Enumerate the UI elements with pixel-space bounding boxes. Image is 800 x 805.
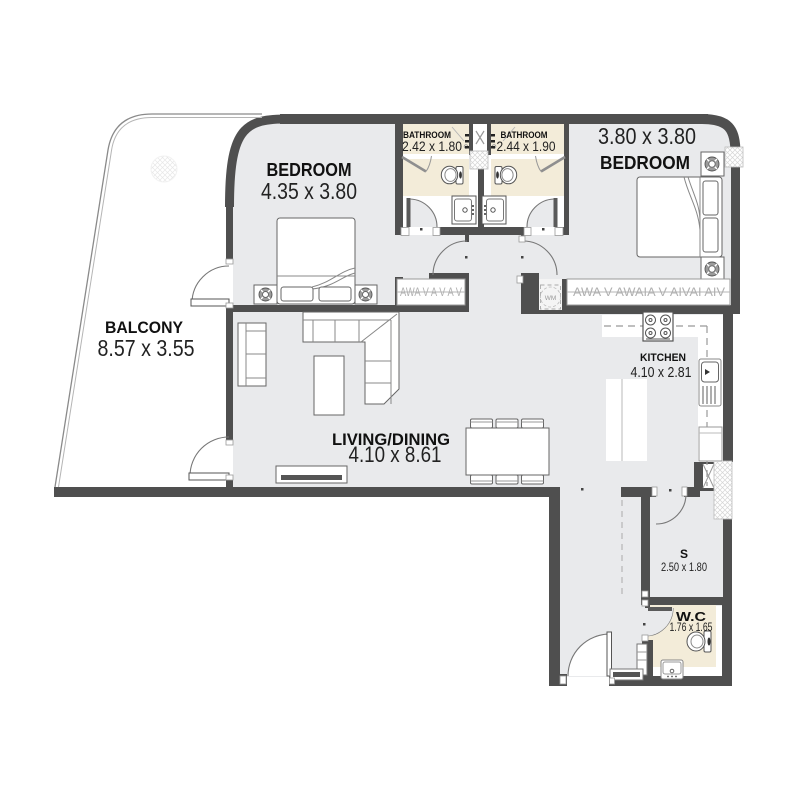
svg-text:S: S [680,547,688,561]
svg-text:WM: WM [545,295,557,302]
svg-text:2.50 x 1.80: 2.50 x 1.80 [661,562,707,574]
svg-text:KITCHEN: KITCHEN [640,352,686,364]
svg-text:8.57 x 3.55: 8.57 x 3.55 [98,335,195,361]
svg-text:2.44 x 1.90: 2.44 x 1.90 [497,138,556,154]
svg-text:4.35 x 3.80: 4.35 x 3.80 [261,178,357,204]
svg-text:2.42 x 1.80: 2.42 x 1.80 [402,138,462,154]
svg-text:4.10 x 2.81: 4.10 x 2.81 [631,365,692,381]
svg-text:BEDROOM: BEDROOM [600,153,690,173]
svg-text:AWA V AWAIA V AIVAI AIV: AWA V AWAIA V AIVAI AIV [573,287,725,299]
svg-text:4.10 x 8.61: 4.10 x 8.61 [349,442,442,467]
svg-text:1.76 x 1.65: 1.76 x 1.65 [670,622,713,634]
svg-text:BEDROOM: BEDROOM [267,160,352,180]
svg-text:3.80 x 3.80: 3.80 x 3.80 [598,123,696,149]
svg-text:AWA V A V A V: AWA V A V A V [400,287,462,299]
